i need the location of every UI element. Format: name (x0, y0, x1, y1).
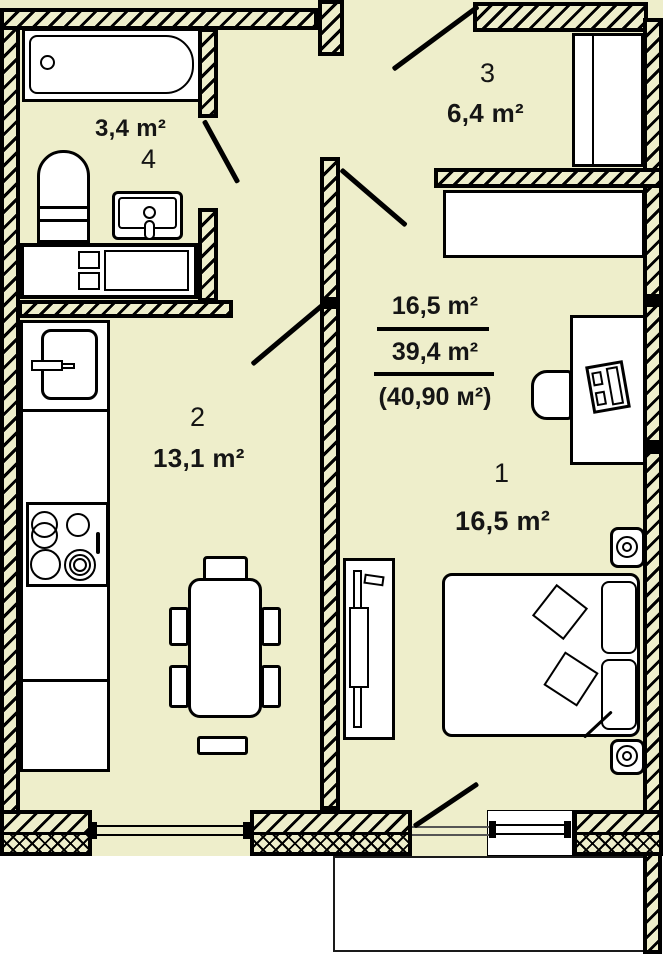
washer-drawer (78, 272, 100, 290)
hallway-wall (434, 168, 663, 188)
window-cap (243, 822, 250, 839)
summary-divider (377, 327, 489, 331)
balcony (333, 856, 647, 952)
wall-right (643, 18, 663, 842)
wall-top-right (473, 2, 648, 32)
hallway-area-label: 6,4 m² (447, 98, 524, 129)
kitchen-number: 2 (190, 402, 205, 433)
counter-divider (21, 679, 109, 682)
summary-total-with-balcony: (40,90 м²) (350, 383, 520, 412)
duvet (601, 581, 637, 654)
wall-bottom-block (250, 810, 412, 856)
wardrobe (572, 33, 644, 167)
summary-total-area: 39,4 m² (350, 338, 520, 367)
summary-divider (374, 372, 494, 376)
bathroom-wall-bottom (18, 300, 233, 318)
duvet (601, 659, 637, 730)
dining-chair (261, 607, 281, 646)
wardrobe-door-line (592, 35, 594, 165)
wall-left (0, 8, 20, 856)
bathroom-area-label: 3,4 m² (95, 115, 166, 143)
counter-divider (21, 409, 109, 412)
sink-faucet-dot (143, 206, 156, 219)
lamp-bulb (622, 751, 632, 761)
floor-plan: 3,4 m² 4 3 6,4 m² 2 13,1 m² 1 16,5 m² 16… (0, 0, 663, 960)
entry-pillar (318, 0, 344, 56)
stove-handle (96, 532, 100, 554)
kitchen-faucet-tip (61, 363, 75, 369)
burner-ring (73, 558, 87, 572)
bathroom-wall-upper (198, 28, 218, 118)
lamp-bulb (622, 542, 632, 552)
built-in-closet (443, 190, 645, 258)
tv-base (349, 607, 369, 688)
wall-bottom-block (573, 810, 663, 856)
bathroom-wall-lower (198, 208, 218, 302)
washing-machine (104, 250, 189, 291)
laptop-key-block (591, 371, 603, 387)
dining-chair (169, 665, 189, 708)
laptop-screen (606, 366, 624, 406)
laptop (585, 360, 631, 414)
washer-drawer (78, 251, 100, 269)
window-cap (90, 822, 97, 839)
hallway-number: 3 (480, 58, 495, 89)
burner (30, 549, 61, 580)
window-cap (489, 821, 496, 838)
desk-chair (531, 370, 572, 420)
kitchen-area-label: 13,1 m² (153, 443, 245, 474)
wall-joint (643, 440, 663, 454)
burner (31, 522, 58, 549)
kitchen-window (94, 825, 247, 836)
bathroom-number: 4 (141, 144, 156, 175)
wall-top (0, 8, 318, 30)
wall-bottom-block (0, 810, 92, 856)
water-heater-line (39, 206, 88, 209)
balcony-door-threshold (412, 826, 489, 836)
sink-faucet-stem (144, 220, 155, 240)
dining-chair (197, 736, 248, 755)
water-heater (37, 150, 90, 243)
dining-chair (261, 665, 281, 708)
kitchen-faucet (31, 360, 63, 371)
summary-living-area: 16,5 m² (350, 292, 520, 321)
burner (66, 513, 90, 537)
laptop-key-block (595, 391, 607, 407)
dining-chair (169, 607, 189, 646)
balcony-wall-right (643, 842, 662, 954)
water-heater-line (39, 219, 88, 222)
dining-table (188, 578, 262, 718)
bedroom-area-label: 16,5 m² (455, 506, 550, 537)
wall-joint (643, 294, 663, 307)
window-cap (564, 821, 571, 838)
bathtub-drain (40, 55, 55, 70)
bedroom-window (492, 824, 568, 835)
wall-central (320, 157, 340, 810)
bedroom-number: 1 (494, 458, 509, 489)
